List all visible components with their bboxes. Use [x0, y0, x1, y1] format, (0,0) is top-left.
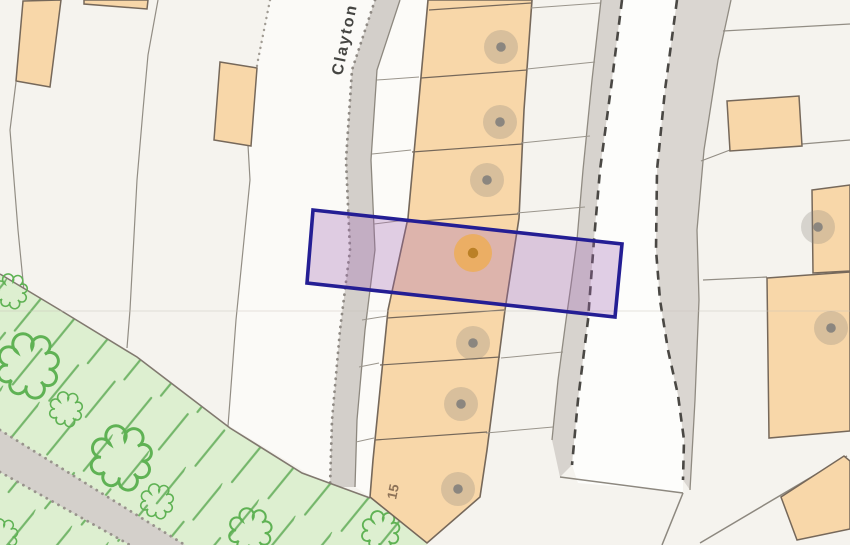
property-marker[interactable] — [484, 30, 518, 64]
property-marker[interactable] — [456, 326, 490, 360]
selected-property-marker[interactable] — [454, 234, 492, 272]
property-marker[interactable] — [441, 472, 475, 506]
map-canvas: Clayton 15 — [0, 0, 850, 545]
building-east-small — [727, 96, 802, 151]
property-marker[interactable] — [483, 105, 517, 139]
property-marker[interactable] — [814, 311, 848, 345]
property-marker[interactable] — [470, 163, 504, 197]
map-viewport: Clayton 15 — [0, 0, 850, 545]
building-east-large — [767, 272, 850, 438]
property-marker[interactable] — [444, 387, 478, 421]
property-marker[interactable] — [801, 210, 835, 244]
building-midtop — [214, 62, 257, 146]
